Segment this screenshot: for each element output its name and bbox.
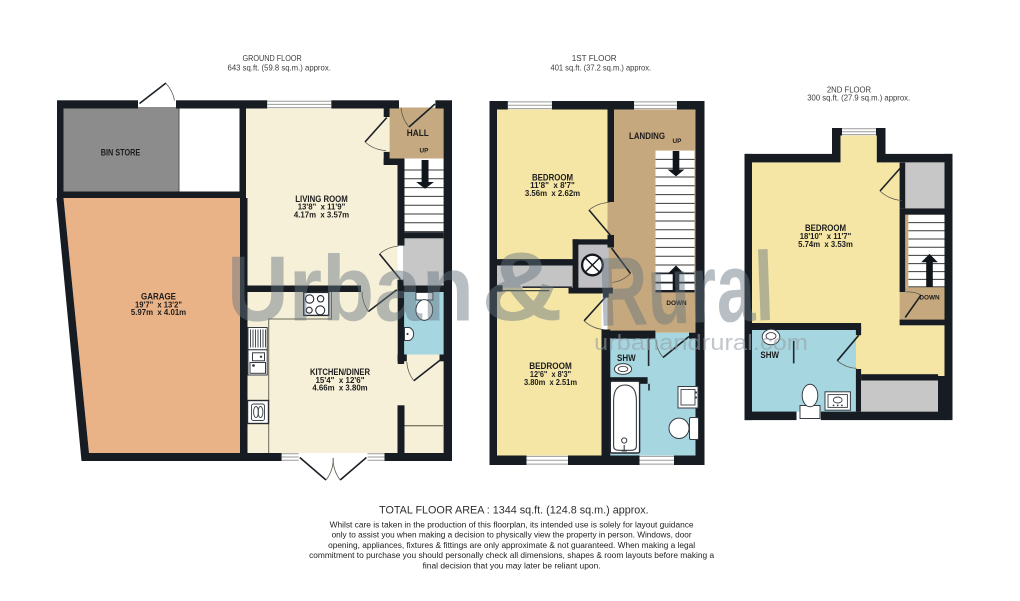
svg-text:UP: UP <box>420 147 430 154</box>
svg-text:643 sq.ft. (59.8 sq.m.) approx: 643 sq.ft. (59.8 sq.m.) approx. <box>228 62 331 72</box>
svg-text:Whilst care is taken in the pr: Whilst care is taken in the production o… <box>330 521 695 530</box>
svg-text:Urban: Urban <box>227 237 474 341</box>
svg-text:HALL: HALL <box>407 128 429 138</box>
svg-text:urbanandrural.com: urbanandrural.com <box>594 330 808 355</box>
svg-text:UP: UP <box>673 138 683 145</box>
svg-text:4.17m x 3.57m: 4.17m x 3.57m <box>294 209 350 219</box>
svg-text:3.56m x 2.62m: 3.56m x 2.62m <box>525 188 581 198</box>
svg-text:&: & <box>481 232 563 341</box>
svg-text:only to assist you when makin: only to assist you when making a decisio… <box>332 531 692 540</box>
svg-text:3.80m x 2.51m: 3.80m x 2.51m <box>524 377 577 387</box>
svg-text:DOWN: DOWN <box>919 295 940 302</box>
svg-text:5.97m x 4.01m: 5.97m x 4.01m <box>131 307 187 317</box>
svg-text:commitment to purchase you sho: commitment to purchase you should person… <box>309 551 715 560</box>
svg-text:TOTAL FLOOR AREA : 1344 sq.ft.: TOTAL FLOOR AREA : 1344 sq.ft. (124.8 sq… <box>379 505 649 517</box>
svg-text:5.74m x 3.53m: 5.74m x 3.53m <box>798 239 853 249</box>
svg-text:4.66m x 3.80m: 4.66m x 3.80m <box>312 383 368 393</box>
svg-text:300 sq.ft. (27.9 sq.m.) approx: 300 sq.ft. (27.9 sq.m.) approx. <box>807 93 910 103</box>
svg-text:BIN STORE: BIN STORE <box>101 147 141 157</box>
svg-text:opening, appliances, fixtures: opening, appliances, fixtures & fittings… <box>328 541 695 550</box>
svg-text:LANDING: LANDING <box>629 131 665 141</box>
svg-text:401 sq.ft. (37.2 sq.m.) approx: 401 sq.ft. (37.2 sq.m.) approx. <box>551 62 652 72</box>
svg-text:final decision that you may la: final decision that you may later be rel… <box>423 561 601 570</box>
